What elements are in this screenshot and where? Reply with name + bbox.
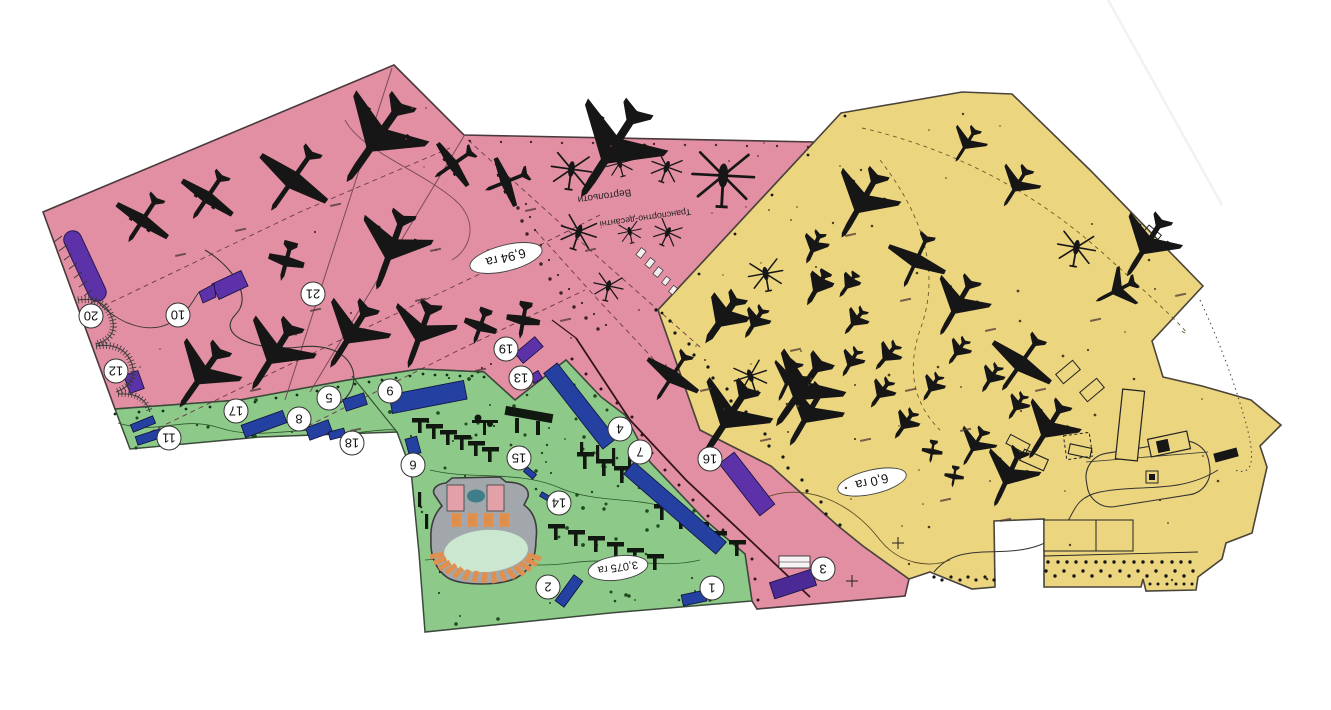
svg-text:20: 20 — [84, 308, 98, 323]
svg-text:2: 2 — [544, 579, 551, 594]
svg-text:11: 11 — [162, 430, 176, 445]
svg-text:8: 8 — [295, 411, 302, 426]
svg-text:7: 7 — [636, 444, 643, 459]
svg-text:15: 15 — [512, 450, 526, 465]
svg-text:9: 9 — [386, 383, 393, 398]
svg-text:21: 21 — [306, 286, 320, 301]
svg-text:13: 13 — [514, 370, 528, 385]
svg-text:14: 14 — [552, 495, 566, 510]
svg-text:16: 16 — [703, 451, 717, 466]
svg-text:1: 1 — [708, 580, 715, 595]
svg-text:6: 6 — [409, 457, 416, 472]
svg-text:10: 10 — [171, 307, 185, 322]
svg-text:4: 4 — [616, 421, 623, 436]
svg-text:3: 3 — [819, 561, 826, 576]
svg-text:18: 18 — [345, 435, 359, 450]
svg-text:17: 17 — [229, 403, 243, 418]
svg-text:5: 5 — [325, 390, 332, 405]
svg-text:19: 19 — [499, 341, 513, 356]
svg-text:12: 12 — [109, 363, 123, 378]
